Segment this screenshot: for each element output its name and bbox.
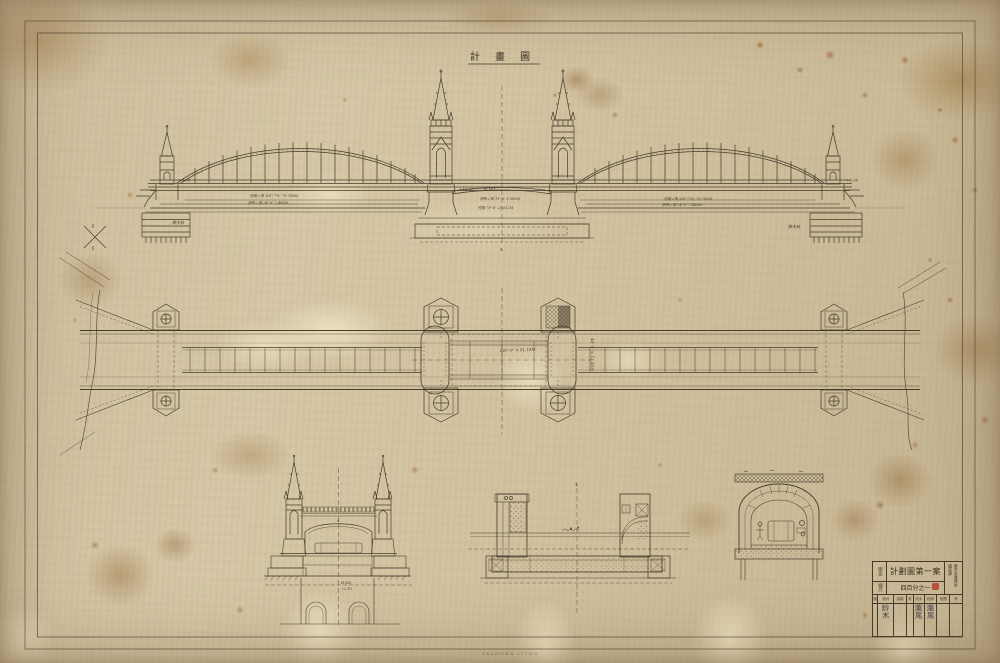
edge-vignette	[0, 0, 1000, 663]
drawing-sheet: 計 畫 圖 ℄	[0, 0, 1000, 663]
